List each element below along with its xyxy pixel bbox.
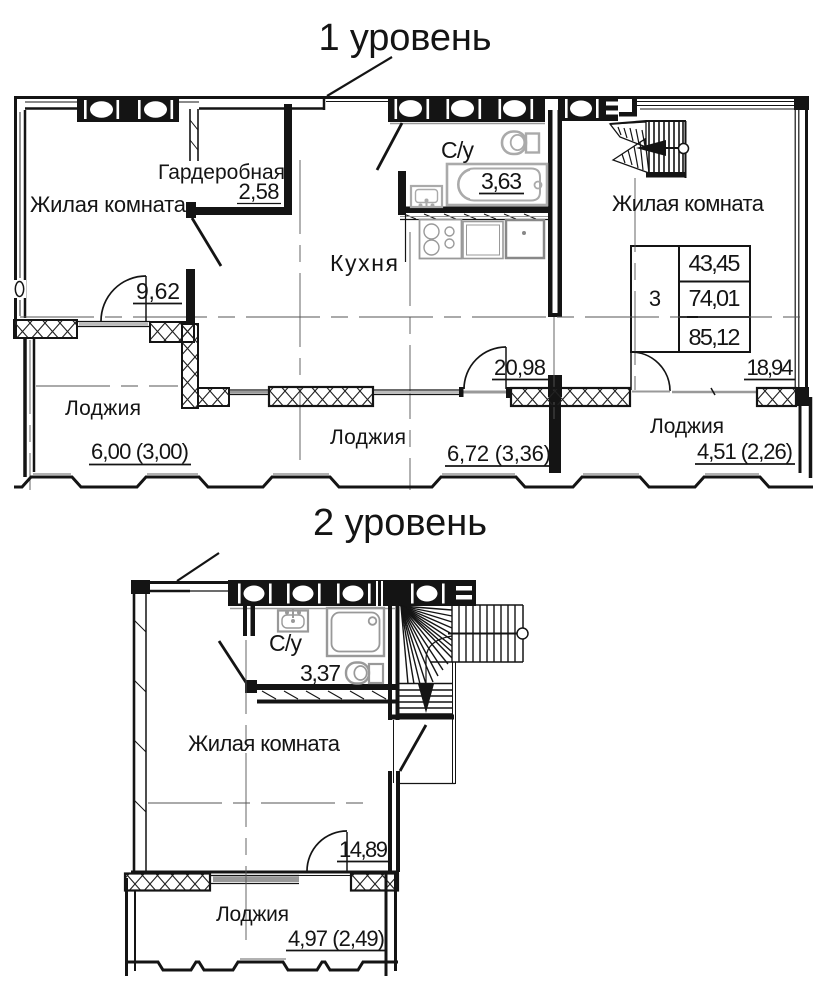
svg-text:Жилая комната: Жилая комната — [612, 191, 765, 216]
svg-text:Жилая комната: Жилая комната — [188, 731, 341, 756]
svg-text:2 уровень: 2 уровень — [313, 502, 487, 544]
svg-text:18,94: 18,94 — [747, 355, 794, 380]
svg-text:3,63: 3,63 — [481, 168, 522, 194]
svg-text:С/у: С/у — [269, 630, 303, 656]
svg-text:4,97 (2,49): 4,97 (2,49) — [288, 926, 385, 951]
svg-text:Лоджия: Лоджия — [216, 903, 289, 926]
svg-text:1 уровень: 1 уровень — [319, 17, 492, 59]
svg-text:Лоджия: Лоджия — [330, 426, 406, 449]
svg-text:Кухня: Кухня — [330, 250, 398, 276]
svg-text:14,89: 14,89 — [339, 837, 388, 862]
svg-text:20,98: 20,98 — [494, 355, 546, 380]
svg-text:С/у: С/у — [441, 137, 475, 163]
svg-text:74,01: 74,01 — [689, 285, 741, 311]
svg-text:Жилая комната: Жилая комната — [30, 192, 187, 217]
svg-text:3,37: 3,37 — [300, 660, 341, 686]
svg-text:6,72 (3,36): 6,72 (3,36) — [447, 441, 551, 466]
svg-text:6,00 (3,00): 6,00 (3,00) — [91, 439, 189, 464]
svg-text:Лоджия: Лоджия — [650, 415, 724, 438]
svg-text:43,45: 43,45 — [689, 250, 741, 276]
svg-text:85,12: 85,12 — [689, 324, 741, 350]
svg-text:9,62: 9,62 — [136, 278, 180, 304]
svg-text:2,58: 2,58 — [239, 179, 280, 204]
svg-text:Лоджия: Лоджия — [65, 397, 141, 420]
svg-text:4,51 (2,26): 4,51 (2,26) — [697, 439, 793, 464]
svg-text:3: 3 — [649, 286, 661, 311]
